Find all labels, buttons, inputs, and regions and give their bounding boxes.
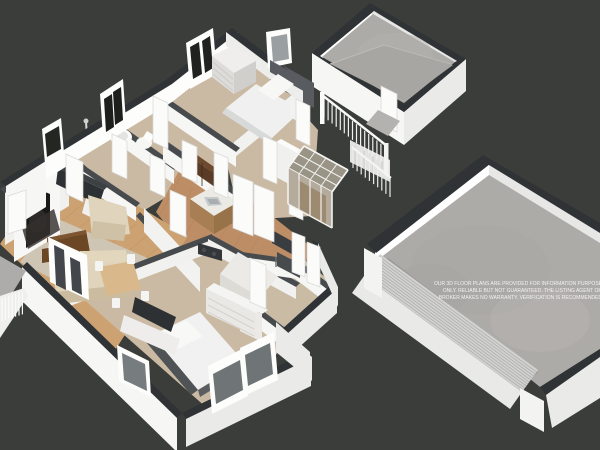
svg-text:OUR 3D FLOOR PLANS ARE PROVIDE: OUR 3D FLOOR PLANS ARE PROVIDED FOR INFO… xyxy=(434,281,600,287)
svg-text:BROKER MAKES NO WARRANTY. VERI: BROKER MAKES NO WARRANTY. VERIFICATION I… xyxy=(439,295,600,301)
svg-text:ONLY. RELIABLE BUT NOT GUARANT: ONLY. RELIABLE BUT NOT GUARANTEED. THE L… xyxy=(443,288,600,294)
